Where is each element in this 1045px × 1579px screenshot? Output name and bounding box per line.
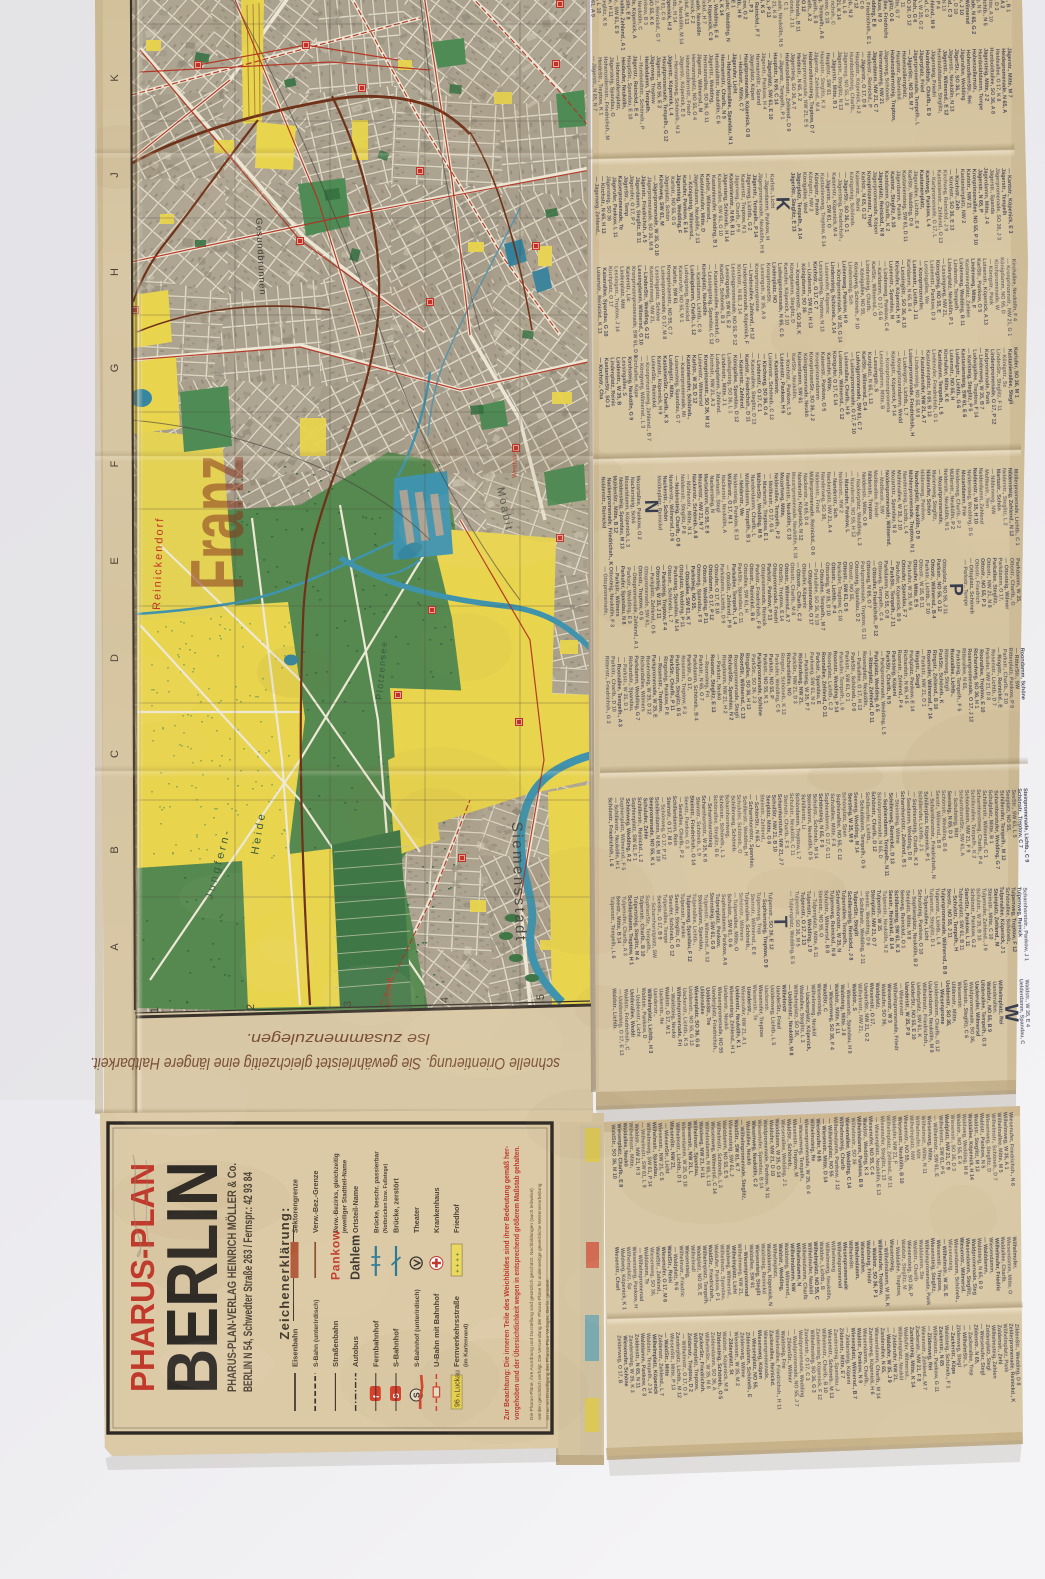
svg-text:Jägerplatz, Fried: Jägerplatz, Fried <box>918 49 925 92</box>
svg-text:Nildenweg, Pankow,: Nildenweg, Pankow, <box>919 469 926 521</box>
svg-text:Sektorengrenze: Sektorengrenze <box>291 1179 300 1233</box>
svg-text:jeweiliger Stadtteil-Name: jeweiliger Stadtteil-Name <box>341 1159 348 1234</box>
svg-text:— Kastanienstr.: — Kastanienstr. <box>772 354 779 395</box>
svg-text:Brücke, zerstört: Brücke, zerstört <box>392 1178 401 1233</box>
svg-text:Tulpenstr., W 35: Tulpenstr., W 35 <box>875 890 882 931</box>
svg-text:— Kirchstr., Zeh: — Kirchstr., Zeh <box>953 168 960 209</box>
svg-text:Lindenplatz, NO: Lindenplatz, NO <box>770 262 777 303</box>
svg-text:Königstr., Panko: Königstr., Panko <box>813 173 820 216</box>
svg-text:Wiesensteig,: Wiesensteig, <box>815 983 822 1017</box>
svg-text:Kaiserstr., Lic: Kaiserstr., Lic <box>624 266 631 301</box>
svg-text:Verw.-Bez.-Grenze: Verw.-Bez.-Grenze <box>311 1171 320 1233</box>
svg-text:Ottostr., NO 55,: Ottostr., NO 55, <box>847 562 854 602</box>
svg-text:(Notbrücken bzw. Fußstege): (Notbrücken bzw. Fußstege) <box>383 1163 389 1233</box>
svg-text:Karlufer, SO 36, M 1: Karlufer, SO 36, M 1 <box>1012 347 1019 398</box>
svg-text:ParkStr., NW 21, D 3: ParkStr., NW 21, D 3 <box>791 652 798 703</box>
svg-text:Uelderstr., Neukö: Uelderstr., Neukö <box>722 985 729 1030</box>
svg-text:Wiesenallee,: Wiesenallee, <box>859 1241 866 1274</box>
svg-text:Jägerufer, O 17, P 7: Jägerufer, O 17, P 7 <box>628 175 635 225</box>
svg-text:Ottoufer, Köpenic: Ottoufer, Köpenic <box>800 563 807 608</box>
svg-text:Uanderstr.,: Uanderstr., <box>745 987 752 1016</box>
svg-text:Ottoallee, SW 61, H: Ottoallee, SW 61, H <box>742 564 749 613</box>
svg-text:Kirchallee, Köpe: Kirchallee, Köpe <box>632 355 639 397</box>
svg-text:Friedhof: Friedhof <box>452 1204 461 1233</box>
svg-text:Jägersteig, Friedri: Jägersteig, Friedri <box>930 50 937 97</box>
svg-text:Kirchstr., N 65, J 14: Kirchstr., N 65, J 14 <box>735 264 742 314</box>
svg-text:Ritterweg, Stegli: Ritterweg, Stegli <box>943 649 950 692</box>
svg-text:Waldplatz,: Waldplatz, <box>874 982 881 1009</box>
svg-text:Waldstr., W 35, E 4: Waldstr., W 35, E 4 <box>1023 980 1030 1028</box>
svg-text:lse zusammenzulegen.: lse zusammenzulegen. <box>246 1030 430 1047</box>
svg-text:Ottostr., Friedrich: Ottostr., Friedrich <box>973 559 980 604</box>
svg-text:Jägersteig, SO 36: Jägersteig, SO 36 <box>605 176 612 221</box>
svg-text:Seeplatz, Mitte, M 8: Seeplatz, Mitte, M 8 <box>904 890 911 940</box>
svg-text:S-Bahnhof: S-Bahnhof <box>392 1328 401 1367</box>
svg-text:Parksteig, NO 55,: Parksteig, NO 55, <box>689 566 696 611</box>
svg-text:Karlstr., SW 61: Karlstr., SW 61 <box>671 266 678 304</box>
svg-text:Parkstr., NO 55, P: Parkstr., NO 55, P <box>767 654 774 699</box>
svg-text:S-Bahnhof (unterirdisch): S-Bahnhof (unterirdisch) <box>414 1289 421 1367</box>
svg-text:Parkufer, W 35, M 6: Parkufer, W 35, M 6 <box>906 561 913 610</box>
svg-text:— Ottosteig, Wilmer: — Ottosteig, Wilmer <box>1002 558 1009 610</box>
svg-text:Uildenstr., Mitte,: Uildenstr., Mitte, <box>950 981 957 1023</box>
svg-text:Krankenhaus: Krankenhaus <box>432 1187 441 1233</box>
svg-text:— RitterStr., SW: — RitterStr., SW <box>1013 648 1020 690</box>
svg-text:Ortsteil-Name: Ortsteil-Name <box>351 1186 360 1233</box>
svg-text:KronprinzenStr.: KronprinzenStr. <box>765 263 772 304</box>
svg-text:Kantstr., NW 21: Kantstr., NW 21 <box>965 169 972 209</box>
svg-text:Uanderstr.,: Uanderstr., <box>652 988 659 1017</box>
svg-text:B: B <box>109 846 121 853</box>
svg-text:+ + + +: + + + + <box>454 1252 461 1273</box>
svg-text:Wiesenstr., Te: Wiesenstr., Te <box>751 985 758 1021</box>
svg-text:Waldsteig, Frie: Waldsteig, Frie <box>779 1330 786 1368</box>
svg-text:— Wiesenprome: — Wiesenprome <box>938 982 945 1024</box>
svg-text:WaldStr., C: WaldStr., C <box>821 984 828 1012</box>
svg-text:Nildenufer, Schön: Nildenufer, Schön <box>925 469 932 515</box>
svg-text:TulpenStr., Steglit: TulpenStr., Steglit <box>852 891 859 937</box>
svg-text:5: 5 <box>535 994 547 1000</box>
svg-text:Wiesensteig,: Wiesensteig, <box>888 1239 895 1273</box>
svg-text:Waldstr., Mitte, K 11: Waldstr., Mitte, K 11 <box>833 983 840 1034</box>
svg-text:Roondamm, Schöne: Roondamm, Schöne <box>1019 648 1026 700</box>
svg-text:Franz: Franz <box>175 455 259 590</box>
svg-text:K: K <box>771 197 792 211</box>
svg-text:Lindenplatz, Reinic: Lindenplatz, Reinic <box>609 357 616 406</box>
svg-text:Ritterallee, N 65,: Ritterallee, N 65, <box>960 648 967 691</box>
svg-text:Autobus: Autobus <box>351 1336 360 1367</box>
svg-text:Waldstr., S: Waldstr., S <box>851 983 858 1011</box>
svg-text:Ludwigstr., Mitte,: Ludwigstr., Mitte, <box>667 355 674 400</box>
svg-text:— Kirchstr., Cha: — Kirchstr., Cha <box>597 357 604 400</box>
svg-text:— Wiesenstr: — Wiesenstr <box>897 983 904 1017</box>
svg-text:— Königstr., Sc: — Königstr., Sc <box>1000 348 1007 388</box>
svg-text:Wilhelmstr: Wilhelmstr <box>780 985 787 1014</box>
svg-text:Uackerstr.: Uackerstr. <box>763 985 770 1012</box>
svg-text:Königallee, Wed: Königallee, Wed <box>801 172 808 214</box>
svg-text:Jägerstr., N 65, P: Jägerstr., N 65, P <box>976 169 983 213</box>
svg-text:E: E <box>109 557 121 564</box>
svg-text:1: 1 <box>149 1007 161 1013</box>
svg-text:JägerStr., Temp: JägerStr., Temp <box>622 176 629 217</box>
svg-text:Kirchplatz, Neukölln: Kirchplatz, Neukölln <box>700 264 707 316</box>
svg-text:Uildenallee: Uildenallee <box>698 986 705 1015</box>
svg-text:Wilhelmstr., NW 21,: Wilhelmstr., NW 21, <box>856 983 863 1033</box>
svg-text:Jägerstr., Mitte, E 1: Jägerstr., Mitte, E 1 <box>729 0 736 8</box>
svg-text:Jägerplatz, Schön: Jägerplatz, Schön <box>663 175 670 221</box>
svg-text:Waldufer, SO 36,: Waldufer, SO 36, <box>880 984 887 1027</box>
svg-text:Jägerweg, Treptow: Jägerweg, Treptow <box>649 55 656 104</box>
svg-text:Schillerufer, Lichtb.,: Schillerufer, Lichtb., <box>864 792 871 844</box>
svg-text:Parkstr., O 17,: Parkstr., O 17, <box>685 654 692 691</box>
svg-text:Fernbahnhof: Fernbahnhof <box>371 1320 380 1367</box>
svg-text:Verw.-Bezirks, gleichzeitig: Verw.-Bezirks, gleichzeitig <box>333 1153 340 1233</box>
svg-text:Schulufer, Zehle: Schulufer, Zehle <box>642 798 649 840</box>
svg-text:Richardallee, NO: Richardallee, NO <box>785 653 792 696</box>
svg-text:Wilhelmufer,: Wilhelmufer, <box>1011 1237 1018 1270</box>
svg-text:Königstr., NW 2: Königstr., NW 2 <box>807 172 814 212</box>
svg-text:Brücke, beschr. passierbar: Brücke, beschr. passierbar <box>373 1151 380 1233</box>
svg-text:Wiesenstr., W 3: Wiesenstr., W 3 <box>886 983 893 1023</box>
svg-text:Jägerstr., Wedding,: Jägerstr., Wedding, <box>707 54 714 104</box>
svg-text:Ringstr., Stegli: Ringstr., Stegli <box>913 651 920 689</box>
svg-text:HermannStr., Spand: HermannStr., Spand <box>754 54 761 106</box>
svg-text:A: A <box>109 943 121 951</box>
svg-text:G: G <box>109 364 121 373</box>
svg-text:Kastanienplatz,: Kastanienplatz, <box>918 170 925 210</box>
svg-text:Nackerstr., N 65, D 4: Nackerstr., N 65, D 4 <box>802 473 809 525</box>
svg-text:— Roonsteig, Fri: — Roonsteig, Fri <box>703 654 710 698</box>
svg-text:Uackerstr., Ne: Uackerstr., Ne <box>657 988 664 1024</box>
svg-text:Marienweg, Steglitz,: Marienweg, Steglitz, <box>930 470 937 522</box>
svg-text:Lessingallee, S: Lessingallee, S <box>620 357 627 396</box>
svg-text:2: 2 <box>245 1004 257 1010</box>
svg-text:Uanderallee,: Uanderallee, <box>991 981 998 1014</box>
svg-text:Theater: Theater <box>412 1207 421 1233</box>
svg-text:Parkallee, Steglitz,: Parkallee, Steglitz, <box>991 558 998 606</box>
svg-text:Ottostr., W 35, B 11: Ottostr., W 35, B 11 <box>917 559 924 608</box>
svg-text:K: K <box>109 74 121 82</box>
svg-text:Hohenzollernstr.,: Hohenzollernstr., <box>971 49 978 93</box>
svg-text:JägerStr., SO 36, L: JägerStr., SO 36, L <box>953 49 960 97</box>
svg-text:H: H <box>109 268 121 276</box>
svg-text:Karlstr., W 35, D 12: Karlstr., W 35, D 12 <box>690 355 697 404</box>
svg-text:Straßenbahn: Straßenbahn <box>331 1320 340 1367</box>
svg-text:Wiesenstr., O 17,: Wiesenstr., O 17, <box>868 983 875 1027</box>
svg-text:Wiesenstr.: Wiesenstr. <box>956 981 963 1009</box>
svg-text:Ottostr., NO 55, P 3: Ottostr., NO 55, P 3 <box>979 558 986 607</box>
svg-text:— Waldsteig, Neukö: — Waldsteig, Neukö <box>669 986 676 1038</box>
svg-text:Waldstr., NO 55, B 9: Waldstr., NO 55, B 9 <box>985 981 992 1032</box>
svg-text:Wilhelmweg: Wilhelmweg <box>829 1241 836 1272</box>
svg-text:Jägerstr., Mitte, M 7: Jägerstr., Mitte, M 7 <box>1006 47 1013 97</box>
svg-text:Schönplatz, Span: Schönplatz, Span <box>840 792 847 837</box>
svg-text:UanderStr., Fried: UanderStr., Fried <box>774 986 781 1030</box>
svg-text:Eisenbahn: Eisenbahn <box>291 1328 300 1367</box>
svg-text:Steinstr., Mitte, C 10: Steinstr., Mitte, C 10 <box>986 888 993 939</box>
svg-text:Jägerufer, Licht: Jägerufer, Licht <box>731 53 738 93</box>
svg-text:Parkdamm, W 35,: Parkdamm, W 35, <box>1014 558 1021 603</box>
svg-text:Parkdamm, O 17,: Parkdamm, O 17, <box>997 558 1004 602</box>
svg-text:Wilhelmplatz,: Wilhelmplatz, <box>771 1244 778 1279</box>
svg-text:UoldenStr., Tre: UoldenStr., Tre <box>704 987 711 1025</box>
svg-text:Parkstr., N 65, O 7: Parkstr., N 65, O 7 <box>697 655 704 701</box>
svg-text:WilhelmStr.: WilhelmStr. <box>847 1240 854 1270</box>
svg-text:— Uoldenstr., Licht: — Uoldenstr., Licht <box>634 988 641 1037</box>
